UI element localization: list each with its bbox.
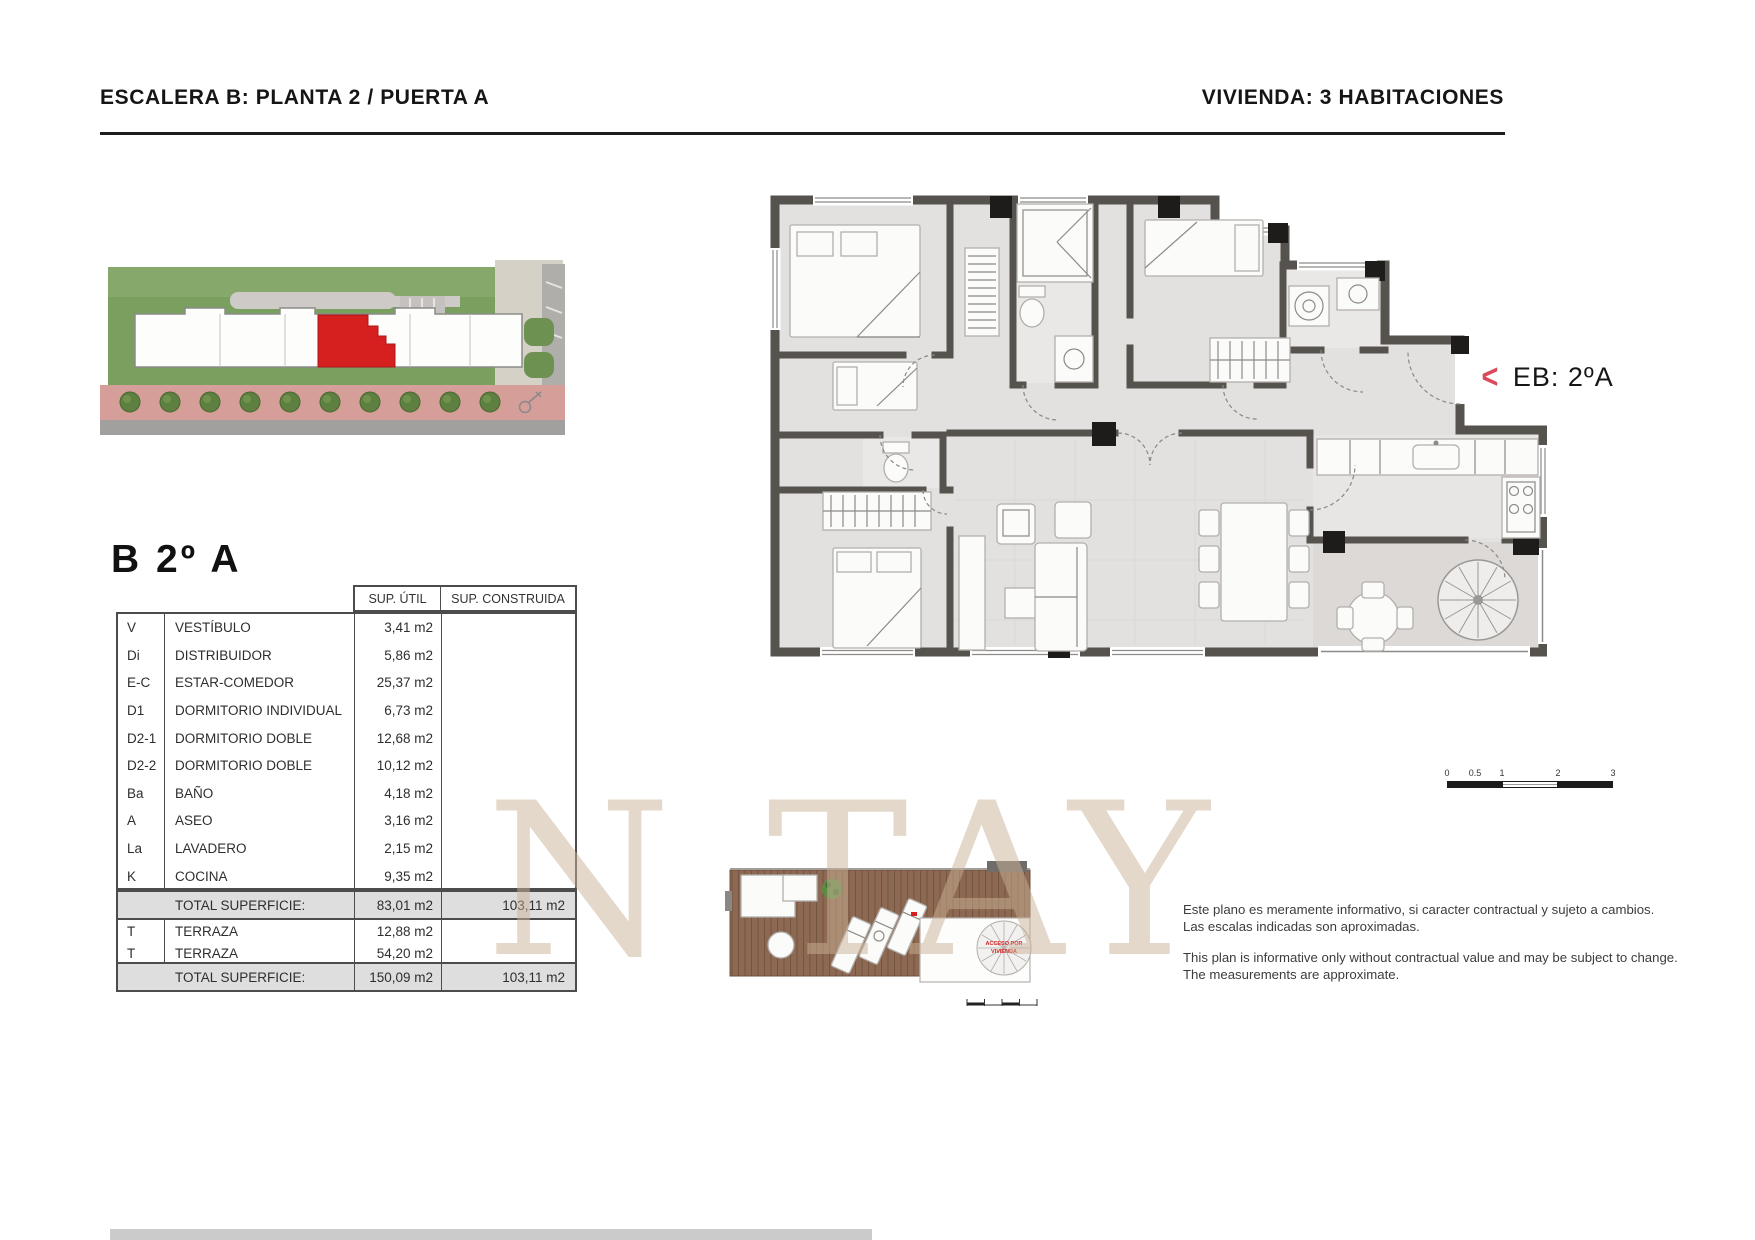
bedroom1-bed-icon [790, 225, 920, 337]
table-row: KCOCINA9,35 m2 [118, 862, 575, 890]
floor-plan [765, 190, 1547, 662]
scale-segment [1447, 781, 1502, 788]
scale-segment [1502, 781, 1558, 788]
scale-label: 0 [1444, 768, 1449, 778]
total-sup-construida: 103,11 m2 [442, 964, 575, 990]
total-sup-construida: 103,11 m2 [442, 892, 575, 918]
terrace-plan: ACCESO POR VIVIENDA [725, 855, 1055, 1015]
total-sup-util: 83,01 m2 [355, 892, 442, 918]
scale-label: 0.5 [1469, 768, 1482, 778]
site-plan [100, 252, 565, 435]
areas-table-header: SUP. ÚTIL SUP. CONSTRUIDA [353, 585, 577, 612]
plan-sheet: ESCALERA B: PLANTA 2 / PUERTA A VIVIENDA… [0, 0, 1755, 1240]
total-overall-row: TOTAL SUPERFICIE: 150,09 m2 103,11 m2 [116, 962, 577, 992]
rooms-body: VVESTÍBULO3,41 m2DiDISTRIBUIDOR5,86 m2E-… [116, 612, 577, 890]
terrace-access-label: ACCESO POR [986, 941, 1023, 947]
table-row: BaBAÑO4,18 m2 [118, 780, 575, 808]
unit-title: B 2º A [111, 538, 242, 582]
unit-plan-label: < EB: 2ºA [1480, 360, 1614, 394]
bedroom2-wardrobe-icon [823, 492, 931, 530]
table-row: TTERRAZA12,88 m2 [118, 920, 575, 942]
table-row: LaLAVADERO2,15 m2 [118, 835, 575, 863]
terrace-stair-room: ACCESO POR VIVIENDA [920, 918, 1031, 982]
page-title-right: VIVIENDA: 3 HABITACIONES [1100, 86, 1504, 110]
total-interior-row: TOTAL SUPERFICIE: 83,01 m2 103,11 m2 [116, 890, 577, 920]
scale-bar: 00.5123 [1447, 768, 1613, 794]
bedroom-d1-bed-icon [833, 362, 917, 410]
table-row: AASEO3,16 m2 [118, 807, 575, 835]
disclaimer-es-1: Este plano es meramente informativo, si … [1183, 901, 1693, 918]
hall-wardrobe-icon [965, 248, 999, 336]
page-title-left: ESCALERA B: PLANTA 2 / PUERTA A [100, 86, 489, 110]
dining-set [1199, 503, 1309, 621]
total-label: TOTAL SUPERFICIE: [118, 892, 355, 918]
table-row: TTERRAZA54,20 m2 [118, 942, 575, 964]
table-row: VVESTÍBULO3,41 m2 [118, 614, 575, 642]
left-arrow-icon: < [1481, 360, 1498, 394]
aseo-toilet-icon [883, 442, 909, 482]
table-row: D2-2DORMITORIO DOBLE10,12 m2 [118, 752, 575, 780]
table-row: D1DORMITORIO INDIVIDUAL6,73 m2 [118, 697, 575, 725]
page-edge-strip [110, 1229, 872, 1240]
col-header-sup-construida: SUP. CONSTRUIDA [441, 587, 575, 610]
terraces-body: TTERRAZA12,88 m2TTERRAZA54,20 m2 [116, 918, 577, 964]
table-row: E-CESTAR-COMEDOR25,37 m2 [118, 669, 575, 697]
scale-bar-segments [1447, 781, 1613, 788]
table-row: DiDISTRIBUIDOR5,86 m2 [118, 642, 575, 670]
north-arrow-icon [516, 390, 544, 416]
disclaimer-en-1: This plan is informative only without co… [1183, 949, 1693, 966]
terrace-mini-scale [967, 999, 1037, 1006]
scale-label: 1 [1499, 768, 1504, 778]
disclaimer: Este plano es meramente informativo, si … [1183, 901, 1693, 984]
spiral-stair-icon [1438, 560, 1518, 640]
scale-label: 3 [1610, 768, 1615, 778]
col-header-sup-util: SUP. ÚTIL [355, 587, 441, 610]
scale-label: 2 [1555, 768, 1560, 778]
bedroom2-bed-icon [833, 548, 921, 648]
total-label: TOTAL SUPERFICIE: [118, 964, 355, 990]
disclaimer-es-2: Las escalas indicadas son aproximadas. [1183, 918, 1693, 935]
terrace-access-label: VIVIENDA [991, 949, 1017, 955]
header-rule [100, 132, 1505, 135]
scale-segment [1558, 781, 1613, 788]
total-sup-util: 150,09 m2 [355, 964, 442, 990]
table-row: D2-1DORMITORIO DOBLE12,68 m2 [118, 724, 575, 752]
unit-plan-label-text: EB: 2ºA [1513, 362, 1614, 393]
disclaimer-en-2: The measurements are approximate. [1183, 966, 1693, 983]
